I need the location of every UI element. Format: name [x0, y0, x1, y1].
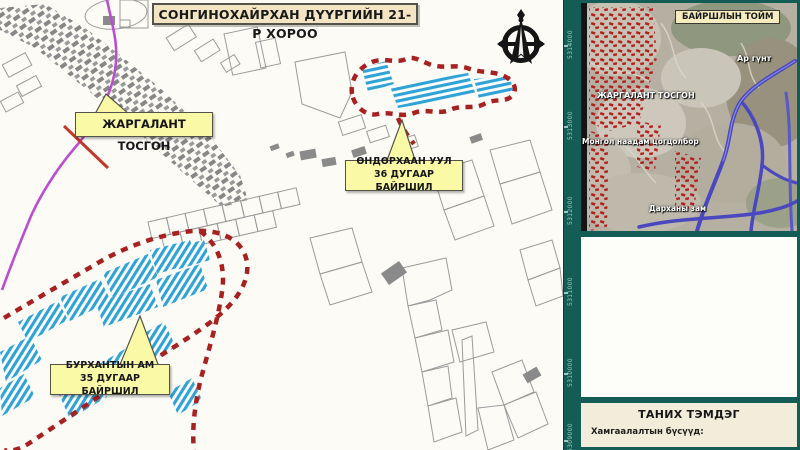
location-overview-inset: БАЙРШЛЫН ТОЙМ Ар гүнт ЖАРГАЛАНТ ТОСГОН М…	[581, 3, 797, 231]
satellite-map	[581, 3, 797, 231]
map-title: СОНГИНОХАЙРХАН ДҮҮРГИЙН 21-Р ХОРОО	[152, 3, 418, 25]
callout-burkhantyn-am: БУРХАНТЫН АМ 35 ДУГААР БАЙРШИЛ	[50, 364, 170, 395]
callout-line2: 36 ДУГААР БАЙРШИЛ	[346, 169, 462, 195]
grid-coordinate-label: 5311000	[567, 277, 574, 306]
grid-coordinate-label: 5310000	[567, 358, 574, 387]
callout-line2: 35 ДУГААР БАЙРШИЛ	[51, 373, 169, 399]
callout-jargalant-tosgon: ЖАРГАЛАНТ ТОСГОН	[75, 112, 213, 137]
inset-label-darkhan-road: Дарханы зам	[649, 204, 706, 213]
callout-undurkhaan-uul: ӨНДӨРХААН УУЛ 36 ДУГААР БАЙРШИЛ	[345, 160, 463, 191]
map-grid-coordinate-strip: 5314000 5313000 5312000 5311000 5310000 …	[563, 0, 578, 450]
cadastral-map: СОНГИНОХАЙРХАН ДҮҮРГИЙН 21-Р ХОРОО ЖАРГА…	[0, 0, 563, 450]
side-panel: БАЙРШЛЫН ТОЙМ Ар гүнт ЖАРГАЛАНТ ТОСГОН М…	[578, 0, 800, 450]
legend-title: ТАНИХ ТЭМДЭГ	[581, 408, 797, 421]
legend-panel: ТАНИХ ТЭМДЭГ Хамгаалалтын бүсүүд:	[581, 403, 797, 447]
grid-coordinate-label: 5309000	[567, 423, 574, 450]
grid-coordinate-label: 5313000	[567, 111, 574, 140]
grid-coordinate-label: 5314000	[567, 30, 574, 59]
inset-left-bar	[581, 3, 587, 231]
empty-panel	[581, 237, 797, 397]
inset-label-ar-gunt: Ар гүнт	[737, 54, 771, 63]
callout-line1: БУРХАНТЫН АМ	[51, 360, 169, 373]
inset-label-jargalant: ЖАРГАЛАНТ ТОСГОН	[597, 91, 695, 100]
callout-line1: ӨНДӨРХААН УУЛ	[346, 156, 462, 169]
inset-label-naadam-complex: Монгол наадам цогцолбор	[582, 137, 699, 146]
grid-coordinate-label: 5312000	[567, 196, 574, 225]
compass-icon	[494, 8, 548, 70]
legend-subtitle: Хамгаалалтын бүсүүд:	[581, 427, 797, 437]
inset-title: БАЙРШЛЫН ТОЙМ	[675, 10, 780, 24]
map-poster: СОНГИНОХАЙРХАН ДҮҮРГИЙН 21-Р ХОРОО ЖАРГА…	[0, 0, 800, 450]
